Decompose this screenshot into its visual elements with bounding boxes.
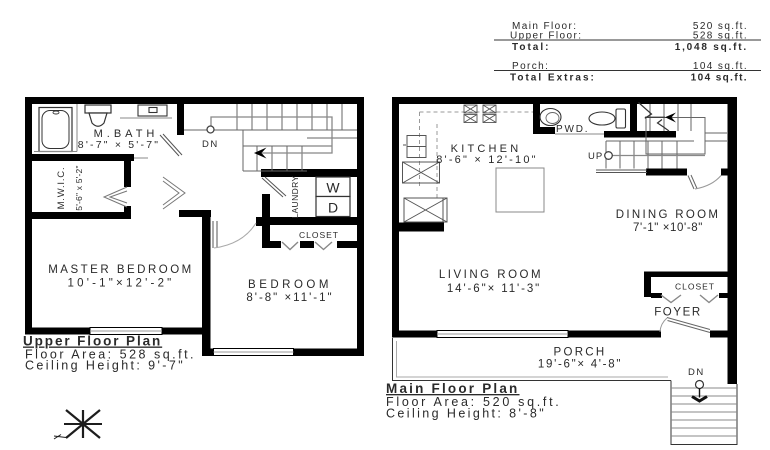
- svg-text:104 sq.ft.: 104 sq.ft.: [691, 73, 748, 84]
- svg-text:CLOSET: CLOSET: [675, 282, 715, 292]
- svg-text:CLOSET: CLOSET: [299, 230, 339, 240]
- svg-text:8'-7" × 5'-7": 8'-7" × 5'-7": [78, 139, 160, 151]
- svg-text:UP: UP: [588, 151, 603, 162]
- svg-text:5'-6" x 5'-2": 5'-6" x 5'-2": [74, 165, 84, 210]
- svg-text:Upper Floor Plan: Upper Floor Plan: [23, 334, 162, 349]
- svg-text:LAUNDRY: LAUNDRY: [290, 175, 300, 218]
- svg-text:BEDROOM: BEDROOM: [248, 279, 332, 291]
- svg-text:M.W.I.C.: M.W.I.C.: [56, 167, 67, 210]
- svg-text:PWD.: PWD.: [556, 124, 589, 135]
- svg-text:Ceiling Height: 8'-8": Ceiling Height: 8'-8": [386, 407, 546, 421]
- svg-text:8'-8" ×11'-1": 8'-8" ×11'-1": [246, 292, 333, 304]
- svg-text:LIVING ROOM: LIVING ROOM: [439, 269, 543, 281]
- svg-text:10'-1"×12'-2": 10'-1"×12'-2": [68, 278, 175, 290]
- svg-text:MASTER BEDROOM: MASTER BEDROOM: [48, 264, 194, 276]
- svg-text:DINING ROOM: DINING ROOM: [616, 209, 721, 221]
- svg-text:1,048 sq.ft.: 1,048 sq.ft.: [675, 42, 748, 53]
- svg-text:W: W: [326, 180, 340, 196]
- svg-text:8'-6" × 12'-10": 8'-6" × 12'-10": [436, 154, 538, 166]
- svg-text:D: D: [328, 200, 338, 216]
- svg-text:DN: DN: [202, 139, 219, 150]
- svg-text:FOYER: FOYER: [654, 307, 702, 319]
- svg-text:Total Extras:: Total Extras:: [510, 73, 596, 84]
- svg-text:Total:: Total:: [512, 42, 550, 53]
- svg-text:PORCH: PORCH: [553, 347, 606, 359]
- svg-text:7'-1" ×10'-8": 7'-1" ×10'-8": [633, 222, 703, 234]
- svg-text:Ceiling Height: 9'-7": Ceiling Height: 9'-7": [25, 359, 185, 373]
- svg-text:19'-6"× 4'-8": 19'-6"× 4'-8": [538, 359, 622, 371]
- svg-text:DN: DN: [688, 367, 705, 378]
- svg-text:Main Floor Plan: Main Floor Plan: [386, 381, 520, 396]
- svg-text:14'-6"× 11'-3": 14'-6"× 11'-3": [447, 283, 541, 295]
